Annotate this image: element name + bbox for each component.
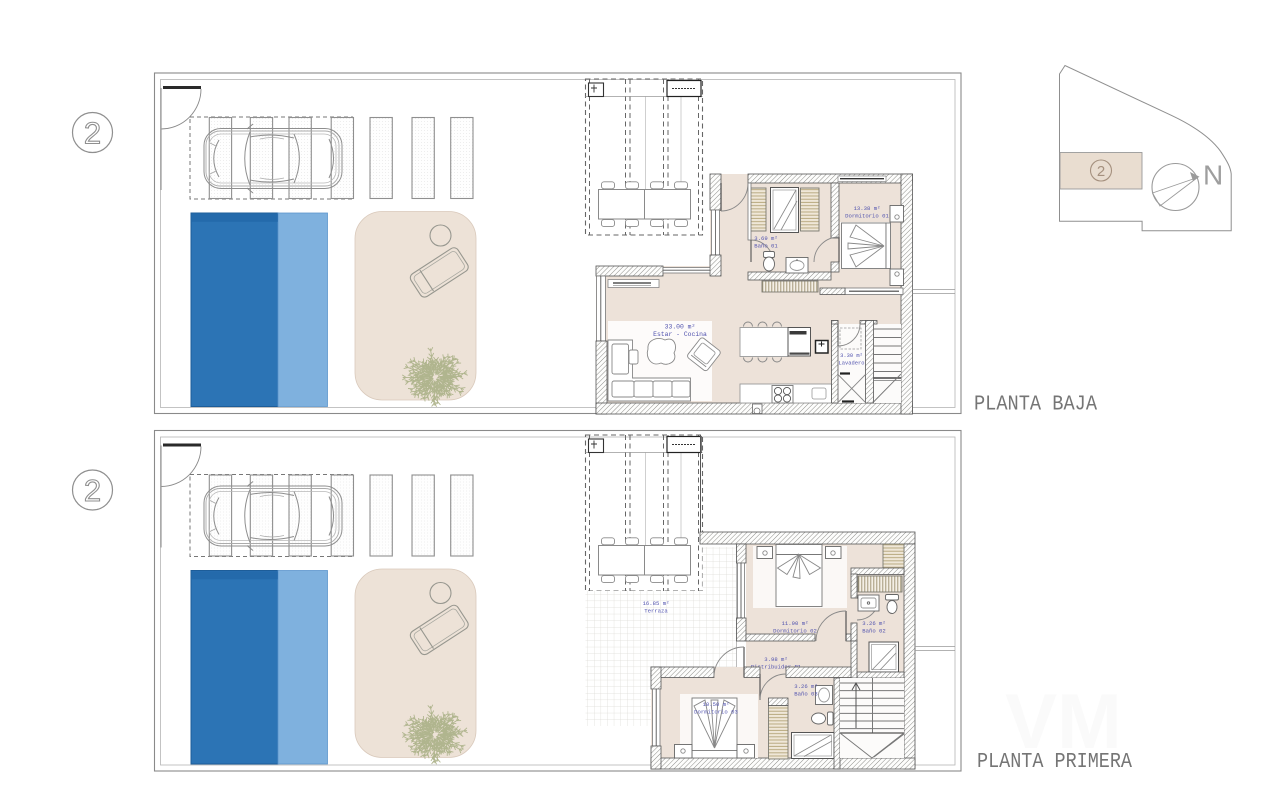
svg-text:3.69 m²: 3.69 m² <box>754 235 778 242</box>
svg-text:3.30 m²: 3.30 m² <box>840 353 863 359</box>
svg-text:Baño 01: Baño 01 <box>754 243 778 250</box>
svg-text:2: 2 <box>1097 163 1105 180</box>
svg-text:VM: VM <box>1005 677 1122 765</box>
svg-text:Terraza: Terraza <box>644 608 668 615</box>
svg-text:10.50 m²: 10.50 m² <box>703 701 730 708</box>
svg-text:Dormitorio 02: Dormitorio 02 <box>773 628 817 635</box>
svg-text:2: 2 <box>84 116 101 151</box>
svg-text:Baño 03: Baño 03 <box>794 691 818 698</box>
svg-text:PLANTA BAJA: PLANTA BAJA <box>974 394 1097 417</box>
svg-text:3.98 m²: 3.98 m² <box>764 656 788 663</box>
svg-text:16.85 m²: 16.85 m² <box>643 600 670 607</box>
svg-text:3.26 m²: 3.26 m² <box>794 683 818 690</box>
svg-text:Baño 02: Baño 02 <box>862 628 886 635</box>
svg-text:33.00 m²: 33.00 m² <box>665 324 696 331</box>
svg-text:Dormitorio 03: Dormitorio 03 <box>694 709 738 716</box>
svg-text:13.38 m²: 13.38 m² <box>854 205 881 212</box>
svg-text:Dormitorio 01: Dormitorio 01 <box>845 213 889 220</box>
svg-text:11.90 m²: 11.90 m² <box>782 620 809 627</box>
svg-text:Lavadero: Lavadero <box>839 361 865 367</box>
svg-text:N: N <box>1203 160 1223 191</box>
svg-text:3.26 m²: 3.26 m² <box>862 620 886 627</box>
svg-text:Estar - Cocina: Estar - Cocina <box>653 331 707 338</box>
